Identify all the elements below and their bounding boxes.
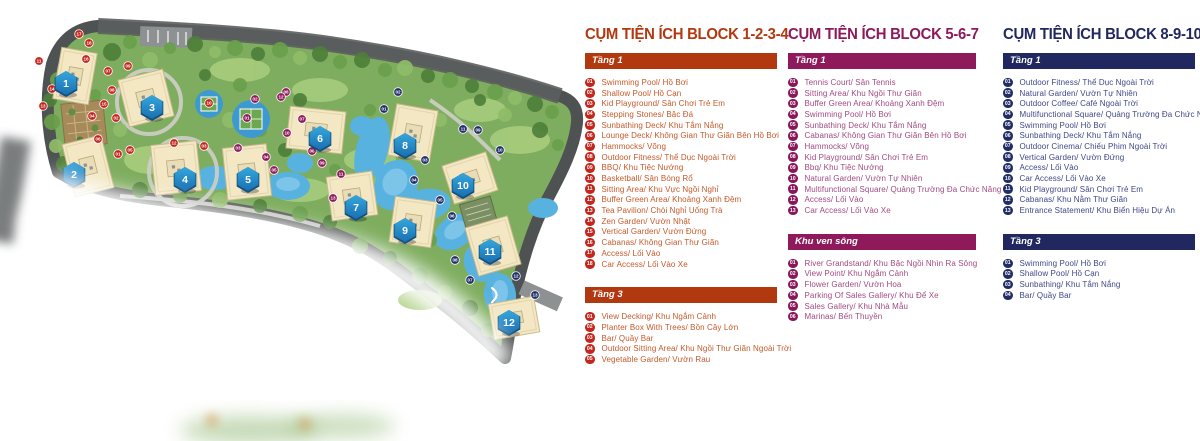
tree-icon [498, 108, 512, 122]
svg-text:07: 07 [467, 278, 473, 283]
amenity-dot-red-08: 08 [108, 86, 117, 95]
item-number-badge: 13 [585, 206, 595, 216]
svg-text:13: 13 [330, 196, 336, 201]
tree-icon [474, 94, 486, 106]
legend-item: 06Marinas/ Bến Thuyền [788, 311, 976, 322]
legend-item: 12Cabanas/ Khu Nằm Thư Giãn [1003, 195, 1195, 206]
site-map-svg: 0102030405060708091011121314151617180102… [0, 0, 585, 441]
item-number-badge: 03 [1003, 280, 1013, 290]
section-item-list: 01Outdoor Fitness/ Thể Dục Ngoài Trời02N… [1003, 77, 1195, 216]
item-number-badge: 02 [1003, 88, 1013, 98]
item-label: Bar/ Quầy Bar [1020, 291, 1072, 300]
tree-icon [364, 104, 376, 116]
svg-text:08: 08 [109, 88, 115, 93]
amenity-dot-navy-08: 08 [451, 256, 460, 265]
tree-icon [113, 123, 127, 137]
item-number-badge: 09 [1003, 163, 1013, 173]
item-label: Tennis Court/ Sân Tennis [805, 78, 896, 87]
item-label: Access/ Lối Vào [805, 195, 864, 204]
item-number-badge: 06 [788, 312, 798, 322]
legend-item: 13Tea Pavilion/ Chòi Nghỉ Uống Trà [585, 205, 777, 216]
legend-item: 08Vertical Garden/ Vườn Đứng [1003, 152, 1195, 163]
item-number-badge: 07 [1003, 142, 1013, 152]
legend-item: 10Natural Garden/ Vườn Tự Nhiên [788, 173, 976, 184]
item-label: Sitting Area/ Khu Ngồi Thư Giãn [805, 89, 922, 98]
svg-text:07: 07 [299, 117, 305, 122]
amenity-dot-navy-05: 05 [436, 196, 445, 205]
svg-text:02: 02 [395, 90, 401, 95]
tree-icon [164, 42, 176, 54]
item-number-badge: 04 [1003, 110, 1013, 120]
item-number-badge: 07 [788, 142, 798, 152]
legend-item: 17Access/ Lối Vào [585, 248, 777, 259]
item-number-badge: 12 [585, 195, 595, 205]
tree-icon [44, 114, 60, 130]
item-label: Outdoor Fitness/ Thể Dục Ngoài Trời [602, 153, 736, 162]
svg-text:01: 01 [381, 107, 387, 112]
amenity-dot-purple-09: 09 [318, 159, 327, 168]
amenity-dot-purple-04: 04 [262, 153, 271, 162]
legend-item: 13Entrance Statement/ Khu Biển Hiệu Dự Á… [1003, 205, 1195, 216]
legend-item: 14Zen Garden/ Vườn Nhật [585, 216, 777, 227]
legend-item: 05Vegetable Garden/ Vườn Rau [585, 354, 777, 365]
item-number-badge: 02 [788, 88, 798, 98]
svg-text:03: 03 [201, 144, 207, 149]
amenity-dot-navy-01: 01 [380, 105, 389, 114]
legend-item: 05Sunbathing Deck/ Khu Tắm Nắng [585, 120, 777, 131]
item-number-badge: 03 [788, 280, 798, 290]
tree-icon [552, 139, 564, 151]
section-item-list: 01View Decking/ Khu Ngắm Cảnh02Planter B… [585, 311, 777, 364]
legend-item: 06Cabanas/ Không Gian Thư Giãn Bên Hồ Bơ… [788, 130, 976, 141]
svg-text:11: 11 [484, 246, 495, 258]
amenity-dot-purple-02: 02 [251, 95, 260, 104]
legend-item: 03Buffer Green Area/ Khoảng Xanh Đệm [788, 98, 976, 109]
legend-title: CỤM TIỆN ÍCH BLOCK 8-9-10-11-12 [1003, 26, 1187, 44]
legend-item: 11Kid Playground/ Sân Chơi Trẻ Em [1003, 184, 1195, 195]
item-number-badge: 18 [585, 259, 595, 269]
legend-title: CỤM TIỆN ÍCH BLOCK 5-6-7 [788, 26, 968, 44]
svg-text:13: 13 [532, 293, 538, 298]
amenity-dot-navy-07: 07 [466, 276, 475, 285]
item-label: Sunbathing Deck/ Khu Tắm Nắng [805, 121, 927, 130]
item-number-badge: 03 [788, 99, 798, 109]
item-label: Cabanas/ Không Gian Thư Giãn Bên Hồ Bơi [805, 131, 967, 140]
legend-item: 07Hammocks/ Võng [788, 141, 976, 152]
tree-icon [465, 79, 479, 93]
item-number-badge: 04 [585, 110, 595, 120]
svg-text:11: 11 [339, 172, 344, 177]
site-map: 0102030405060708091011121314151617180102… [0, 0, 585, 441]
item-number-badge: 09 [788, 163, 798, 173]
amenity-dot-red-17: 17 [75, 30, 84, 39]
tree-icon [333, 55, 347, 69]
tree-icon [354, 52, 370, 68]
amenity-dot-purple-10: 10 [283, 129, 292, 138]
legend-item: 13Car Access/ Lối Vào Xe [788, 205, 976, 216]
tree-icon [312, 46, 328, 62]
item-label: Swimming Pool/ Hồ Bơi [1020, 121, 1106, 130]
legend-item: 06Sunbathing Deck/ Khu Tắm Nắng [1003, 130, 1195, 141]
legend-item: 01Swimming Pool/ Hồ Bơi [1003, 258, 1195, 269]
svg-text:15: 15 [101, 102, 107, 107]
svg-text:04: 04 [411, 178, 417, 183]
item-number-badge: 04 [788, 110, 798, 120]
tree-icon [123, 35, 137, 49]
legend-item: 04Swimming Pool/ Hồ Bơi [788, 109, 976, 120]
item-label: Car Access/ Lối Vào Xe [805, 206, 891, 215]
item-label: Swimming Pool/ Hồ Bơi [1020, 259, 1106, 268]
section-heading-bar: Tầng 3 [1003, 234, 1195, 250]
item-number-badge: 02 [585, 323, 595, 333]
legend-item: 03Flower Garden/ Vườn Hoa [788, 279, 976, 290]
legend-title: CỤM TIỆN ÍCH BLOCK 1-2-3-4 [585, 26, 769, 44]
tree-icon [545, 105, 559, 119]
item-label: Sunbathing Deck/ Khu Tắm Nắng [602, 121, 724, 130]
legend-item: 12Access/ Lối Vào [788, 195, 976, 206]
section-item-list: 01Swimming Pool/ Hồ Bơi02Shallow Pool/ H… [1003, 258, 1195, 301]
item-number-badge: 15 [585, 227, 595, 237]
svg-text:14: 14 [49, 87, 55, 92]
svg-text:12: 12 [513, 274, 519, 279]
legend-item: 11Sitting Area/ Khu Vực Ngồi Nghỉ [585, 184, 777, 195]
svg-text:09: 09 [319, 161, 325, 166]
legend-item: 01View Decking/ Khu Ngắm Cảnh [585, 311, 777, 322]
svg-text:12: 12 [278, 95, 284, 100]
legend-item: 02Planter Box With Trees/ Bồn Cây Lớn [585, 322, 777, 333]
legend-item: 09BBQ/ Khu Tiệc Nướng [585, 163, 777, 174]
section-heading-bar: Tầng 1 [1003, 53, 1195, 69]
item-number-badge: 02 [788, 269, 798, 279]
tree-icon [397, 60, 413, 76]
item-number-badge: 13 [1003, 206, 1013, 216]
amenity-dot-navy-12: 12 [512, 272, 521, 281]
tree-icon [187, 36, 203, 52]
item-number-badge: 01 [585, 312, 595, 322]
item-label: Natural Garden/ Vườn Tự Nhiên [1020, 89, 1138, 98]
item-label: Kid Playground/ Sân Chơi Trẻ Em [1020, 185, 1144, 194]
legend-section: Tầng 301Swimming Pool/ Hồ Bơi02Shallow P… [1003, 234, 1195, 301]
legend-item: 09Bbq/ Khu Tiệc Nướng [788, 163, 976, 174]
item-number-badge: 01 [788, 78, 798, 88]
svg-text:10: 10 [206, 101, 212, 106]
svg-text:18: 18 [86, 41, 92, 46]
legend-item: 05Swimming Pool/ Hồ Bơi [1003, 120, 1195, 131]
item-label: Hammocks/ Võng [602, 142, 667, 151]
item-label: Hammocks/ Võng [805, 142, 870, 151]
building-footprint-9 [389, 196, 437, 247]
masterplan-infographic: 0102030405060708091011121314151617180102… [0, 0, 1200, 441]
legend-section: Tầng 101Outdoor Fitness/ Thể Dục Ngoài T… [1003, 53, 1195, 216]
tree-icon [253, 199, 267, 213]
amenity-dot-navy-13: 13 [531, 291, 540, 300]
amenity-dot-red-16: 16 [82, 55, 91, 64]
item-label: Zen Garden/ Vườn Nhật [602, 217, 691, 226]
section-heading-bar: Tầng 3 [585, 287, 777, 303]
item-number-badge: 17 [585, 249, 595, 259]
svg-text:4: 4 [182, 174, 188, 186]
legend-item: 02Natural Garden/ Vườn Tự Nhiên [1003, 88, 1195, 99]
svg-text:03: 03 [422, 158, 428, 163]
legend-item: 08Kid Playground/ Sân Chơi Trẻ Em [788, 152, 976, 163]
amenity-dot-red-06: 06 [94, 135, 103, 144]
legend-item: 01Tennis Court/ Sân Tennis [788, 77, 976, 88]
legend-item: 01River Grandstand/ Khu Bậc Ngồi Nhìn Ra… [788, 258, 976, 269]
item-number-badge: 12 [788, 195, 798, 205]
item-label: Cabanas/ Khu Nằm Thư Giãn [1020, 195, 1128, 204]
legend-item: 08Outdoor Fitness/ Thể Dục Ngoài Trời [585, 152, 777, 163]
item-label: Kid Playground/ Sân Chơi Trẻ Em [805, 153, 929, 162]
svg-text:5: 5 [245, 174, 251, 186]
item-label: BBQ/ Khu Tiệc Nướng [602, 163, 684, 172]
item-label: View Point/ Khu Ngắm Cảnh [805, 269, 909, 278]
item-label: Cabanas/ Không Gian Thư Giãn [602, 238, 719, 247]
item-label: Access/ Lối Vào [602, 249, 661, 258]
legend-column-block-8-9-10-11-12: CỤM TIỆN ÍCH BLOCK 8-9-10-11-12Tầng 101O… [1003, 26, 1195, 301]
tree-icon [142, 52, 158, 68]
legend-item: 18Car Access/ Lối Vào Xe [585, 259, 777, 270]
item-number-badge: 05 [788, 301, 798, 311]
item-label: Parking Of Sales Gallery/ Khu Để Xe [805, 291, 939, 300]
amenity-dot-navy-02: 02 [394, 88, 403, 97]
amenity-dot-purple-05: 05 [270, 166, 279, 175]
legend-item: 02View Point/ Khu Ngắm Cảnh [788, 269, 976, 280]
item-number-badge: 11 [788, 184, 798, 194]
item-label: Stepping Stones/ Bậc Đá [602, 110, 694, 119]
section-heading-bar: Tầng 1 [585, 53, 777, 69]
svg-text:3: 3 [149, 102, 155, 114]
item-label: Flower Garden/ Vườn Hoa [805, 280, 902, 289]
item-number-badge: 08 [788, 152, 798, 162]
item-number-badge: 01 [1003, 78, 1013, 88]
item-label: Vertical Garden/ Vườn Đứng [1020, 153, 1125, 162]
item-number-badge: 01 [1003, 259, 1013, 269]
item-label: Tea Pavilion/ Chòi Nghỉ Uống Trà [602, 206, 723, 215]
item-label: Outdoor Coffee/ Café Ngoài Trời [1020, 99, 1138, 108]
svg-text:01: 01 [244, 116, 250, 121]
svg-text:05: 05 [127, 148, 133, 153]
legend-item: 07Outdoor Cinema/ Chiếu Phim Ngoài Trời [1003, 141, 1195, 152]
item-number-badge: 08 [1003, 152, 1013, 162]
tree-icon [233, 78, 247, 92]
legend-item: 04Bar/ Quầy Bar [1003, 290, 1195, 301]
item-number-badge: 05 [1003, 120, 1013, 130]
tree-icon [49, 139, 63, 153]
amenity-dot-red-03: 03 [200, 142, 209, 151]
item-label: Lounge Deck/ Không Gian Thư Giãn Bên Hồ … [602, 131, 780, 140]
svg-text:09: 09 [475, 128, 481, 133]
item-label: Outdoor Sitting Area/ Khu Ngồi Thư Giãn … [602, 344, 792, 353]
amenity-dot-red-10: 10 [205, 99, 214, 108]
item-number-badge: 07 [585, 142, 595, 152]
item-label: River Grandstand/ Khu Bậc Ngồi Nhìn Ra S… [805, 259, 978, 268]
legend-item: 10Basketball/ Sân Bóng Rổ [585, 173, 777, 184]
svg-text:01: 01 [115, 152, 121, 157]
item-number-badge: 04 [788, 291, 798, 301]
legend-section: Khu ven sông01River Grandstand/ Khu Bậc … [788, 234, 976, 322]
amenity-dot-purple-01: 01 [243, 114, 252, 123]
item-number-badge: 05 [788, 120, 798, 130]
legend-item: 02Shallow Pool/ Hồ Cạn [585, 88, 777, 99]
item-number-badge: 02 [1003, 269, 1013, 279]
item-label: Bar/ Quầy Bar [602, 334, 654, 343]
item-number-badge: 11 [585, 184, 595, 194]
amenity-dot-red-18: 18 [85, 39, 94, 48]
svg-text:06: 06 [449, 214, 455, 219]
amenity-dot-navy-06: 06 [448, 212, 457, 221]
amenity-dot-purple-07: 07 [298, 115, 307, 124]
svg-text:12: 12 [503, 317, 515, 329]
item-label: Outdoor Fitness/ Thể Dục Ngoài Trời [1020, 78, 1154, 87]
svg-text:17: 17 [76, 32, 82, 37]
tree-icon [209, 46, 221, 58]
amenity-dot-purple-12: 12 [277, 93, 286, 102]
legend-item: 02Shallow Pool/ Hồ Cạn [1003, 269, 1195, 280]
legend-item: 09Access/ Lối Vào [1003, 163, 1195, 174]
item-number-badge: 13 [788, 206, 798, 216]
item-label: Shallow Pool/ Hồ Cạn [602, 89, 682, 98]
amenity-dot-purple-13: 13 [329, 194, 338, 203]
item-label: Swimming Pool/ Hồ Bơi [602, 78, 688, 87]
item-number-badge: 06 [1003, 131, 1013, 141]
amenity-dot-red-09: 09 [124, 62, 133, 71]
amenity-dot-navy-04: 04 [410, 176, 419, 185]
svg-text:02: 02 [113, 116, 119, 121]
svg-text:6: 6 [317, 133, 323, 145]
amenity-dot-navy-03: 03 [421, 156, 430, 165]
item-label: Entrance Statement/ Khu Biển Hiệu Dự Án [1020, 206, 1176, 215]
item-label: Multifunctional Square/ Quảng Trường Đa … [805, 185, 1002, 194]
legend-item: 03Bar/ Quầy Bar [585, 333, 777, 344]
item-label: Buffer Green Area/ Khoảng Xanh Đệm [602, 195, 742, 204]
legend-item: 10Car Access/ Lối Vào Xe [1003, 173, 1195, 184]
item-number-badge: 16 [585, 238, 595, 248]
amenity-dot-red-07: 07 [104, 67, 113, 76]
item-number-badge: 03 [585, 99, 595, 109]
svg-text:16: 16 [83, 57, 89, 62]
section-heading-bar: Khu ven sông [788, 234, 976, 250]
svg-text:04: 04 [89, 114, 95, 119]
item-label: Access/ Lối Vào [1020, 163, 1079, 172]
item-label: Sales Gallery/ Khu Nhà Mẫu [805, 302, 909, 311]
section-item-list: 01Tennis Court/ Sân Tennis02Sitting Area… [788, 77, 976, 216]
legend-section: Tầng 301View Decking/ Khu Ngắm Cảnh02Pla… [585, 287, 777, 364]
amenity-dot-red-12: 12 [170, 139, 179, 148]
item-label: Sitting Area/ Khu Vực Ngồi Nghỉ [602, 185, 719, 194]
item-label: Sunbathing/ Khu Tắm Nắng [1020, 280, 1121, 289]
amenity-dot-red-05: 05 [126, 146, 135, 155]
legend-section: Tầng 101Tennis Court/ Sân Tennis02Sittin… [788, 53, 976, 216]
legend-item: 03Sunbathing/ Khu Tắm Nắng [1003, 279, 1195, 290]
item-number-badge: 10 [1003, 174, 1013, 184]
item-label: Car Access/ Lối Vào Xe [1020, 174, 1106, 183]
tree-icon [442, 72, 458, 88]
item-label: Swimming Pool/ Hồ Bơi [805, 110, 891, 119]
svg-text:10: 10 [284, 131, 290, 136]
svg-text:9: 9 [402, 225, 408, 237]
item-label: Marinas/ Bến Thuyền [805, 312, 883, 321]
legend-section: Tầng 101Swimming Pool/ Hồ Bơi02Shallow P… [585, 53, 777, 269]
tree-icon [378, 63, 392, 77]
item-number-badge: 05 [585, 120, 595, 130]
item-label: Outdoor Cinema/ Chiếu Phim Ngoài Trời [1020, 142, 1168, 151]
tree-icon [251, 47, 265, 61]
tree-icon [227, 40, 243, 56]
legend-item: 12Buffer Green Area/ Khoảng Xanh Đệm [585, 195, 777, 206]
svg-text:11: 11 [461, 127, 466, 132]
legend-item: 02Sitting Area/ Khu Ngồi Thư Giãn [788, 88, 976, 99]
svg-text:06: 06 [95, 137, 101, 142]
item-label: Natural Garden/ Vườn Tự Nhiên [805, 174, 923, 183]
svg-text:13: 13 [40, 104, 46, 109]
svg-text:7: 7 [353, 202, 359, 214]
tree-icon [199, 69, 211, 81]
item-label: Multifunctional Square/ Quảng Trường Đa … [1020, 110, 1200, 119]
legend-item: 03Outdoor Coffee/ Café Ngoài Trời [1003, 98, 1195, 109]
tree-icon [487, 84, 503, 100]
svg-text:05: 05 [437, 198, 443, 203]
item-number-badge: 06 [788, 131, 798, 141]
amenity-dot-red-01: 01 [114, 150, 123, 159]
section-heading-bar: Tầng 1 [788, 53, 976, 69]
item-number-badge: 02 [585, 88, 595, 98]
amenity-dot-red-04: 04 [88, 112, 97, 121]
svg-text:02: 02 [252, 97, 258, 102]
tree-icon [212, 192, 228, 208]
section-item-list: 01River Grandstand/ Khu Bậc Ngồi Nhìn Ra… [788, 258, 976, 322]
item-number-badge: 01 [788, 259, 798, 269]
svg-text:11: 11 [37, 59, 42, 64]
amenity-dot-purple-11: 11 [337, 170, 346, 179]
legend-item: 04Multifunctional Square/ Quảng Trường Đ… [1003, 109, 1195, 120]
legend-item: 04Parking Of Sales Gallery/ Khu Để Xe [788, 290, 976, 301]
svg-text:12: 12 [171, 141, 177, 146]
legend-item: 05Sunbathing Deck/ Khu Tắm Nắng [788, 120, 976, 131]
item-number-badge: 06 [585, 131, 595, 141]
tree-icon [293, 93, 307, 107]
amenity-dot-red-15: 15 [100, 100, 109, 109]
amenity-dot-red-11: 11 [35, 57, 44, 66]
item-label: Basketball/ Sân Bóng Rổ [602, 174, 693, 183]
item-number-badge: 01 [585, 78, 595, 88]
item-label: Sunbathing Deck/ Khu Tắm Nắng [1020, 131, 1142, 140]
svg-text:03: 03 [235, 146, 241, 151]
item-label: View Decking/ Khu Ngắm Cảnh [602, 312, 717, 321]
tree-icon [103, 43, 121, 61]
item-number-badge: 04 [1003, 291, 1013, 301]
svg-text:08: 08 [452, 258, 458, 263]
tree-icon [508, 91, 522, 105]
amenity-dot-navy-11: 11 [459, 125, 468, 134]
item-label: Kid Playground/ Sân Chơi Trẻ Em [602, 99, 726, 108]
item-label: Planter Box With Trees/ Bồn Cây Lớn [602, 323, 739, 332]
item-number-badge: 11 [1003, 184, 1013, 194]
legend-item: 03Kid Playground/ Sân Chơi Trẻ Em [585, 98, 777, 109]
item-number-badge: 10 [788, 174, 798, 184]
svg-text:04: 04 [263, 155, 269, 160]
item-number-badge: 12 [1003, 195, 1013, 205]
item-number-badge: 04 [585, 344, 595, 354]
tree-icon [421, 69, 435, 83]
amenity-dot-purple-03: 03 [234, 144, 243, 153]
item-label: Buffer Green Area/ Khoảng Xanh Đệm [805, 99, 945, 108]
svg-text:10: 10 [497, 148, 503, 153]
legend-item: 06Lounge Deck/ Không Gian Thư Giãn Bên H… [585, 130, 777, 141]
item-number-badge: 14 [585, 217, 595, 227]
item-label: Car Access/ Lối Vào Xe [602, 260, 688, 269]
amenity-dot-navy-09: 09 [474, 126, 483, 135]
svg-text:09: 09 [125, 64, 131, 69]
